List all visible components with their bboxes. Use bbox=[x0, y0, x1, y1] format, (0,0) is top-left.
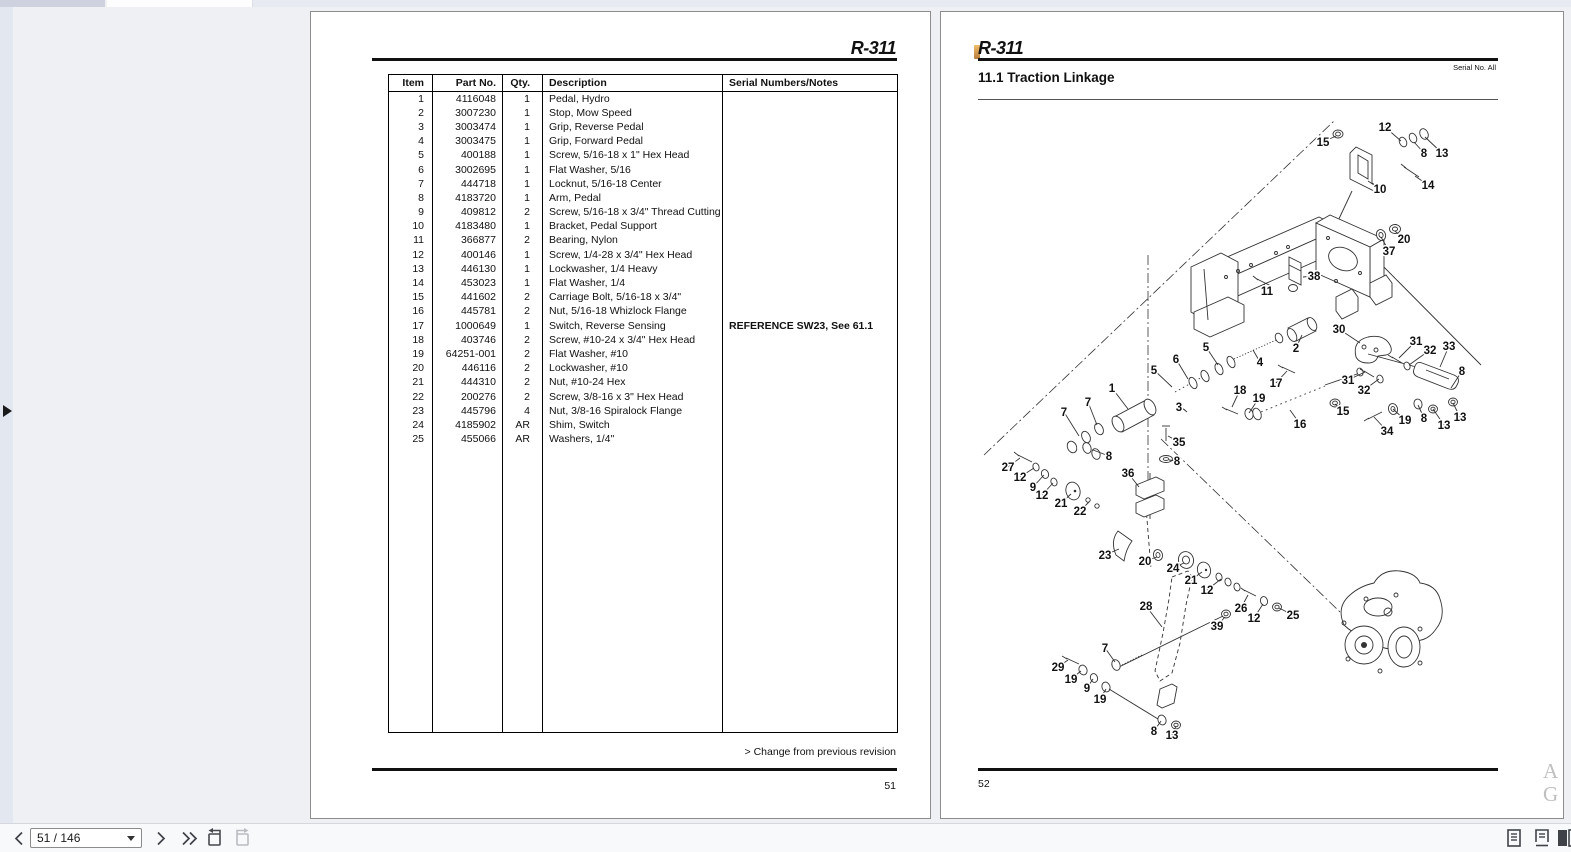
cell-item: 21 bbox=[389, 375, 433, 389]
table-row: 430034751Grip, Forward Pedal bbox=[389, 134, 898, 148]
cell-item: 8 bbox=[389, 191, 433, 205]
cell-notes bbox=[723, 361, 898, 375]
cell-qty: AR bbox=[503, 418, 543, 432]
cell-desc: Nut, 5/16-18 Whizlock Flange bbox=[543, 304, 723, 318]
rotate-counterclockwise-button[interactable] bbox=[203, 827, 225, 849]
cell-item: 6 bbox=[389, 162, 433, 176]
page-indicator: 51 / 146 bbox=[37, 831, 80, 845]
cell-qty: 2 bbox=[503, 375, 543, 389]
part-callout: 20 bbox=[1398, 234, 1411, 246]
cell-desc: Washers, 1/4" bbox=[543, 432, 723, 446]
cell-qty: 2 bbox=[503, 205, 543, 219]
cell-notes bbox=[723, 134, 898, 148]
part-callout: 32 bbox=[1358, 385, 1371, 397]
table-row: 94098122Screw, 5/16-18 x 3/4" Thread Cut… bbox=[389, 205, 898, 219]
part-callout: 8 bbox=[1106, 451, 1113, 463]
cell-empty bbox=[433, 446, 503, 732]
part-callout: 25 bbox=[1287, 610, 1300, 622]
cell-desc: Screw, 5/16-18 x 1" Hex Head bbox=[543, 148, 723, 162]
serial-note: Serial No. All bbox=[1453, 63, 1496, 72]
cell-notes bbox=[723, 304, 898, 318]
cell-notes bbox=[723, 106, 898, 120]
part-callout: 21 bbox=[1185, 575, 1198, 587]
pdf-page-52[interactable]: R-311 Serial No. All 11.1 Traction Linka… bbox=[940, 11, 1564, 819]
part-callout: 28 bbox=[1140, 601, 1153, 613]
cell-part: 3007230 bbox=[433, 106, 503, 120]
table-row: 214443102Nut, #10-24 Hex bbox=[389, 375, 898, 389]
cell-qty: 2 bbox=[503, 290, 543, 304]
cell-notes bbox=[723, 162, 898, 176]
cell-item: 16 bbox=[389, 304, 433, 318]
cell-item: 24 bbox=[389, 418, 433, 432]
cell-item: 19 bbox=[389, 347, 433, 361]
cell-item: 7 bbox=[389, 177, 433, 191]
cell-item: 10 bbox=[389, 219, 433, 233]
cell-qty: 1 bbox=[503, 106, 543, 120]
part-callout: 7 bbox=[1085, 397, 1091, 409]
pdf-viewer: R-311 ItemPart No.Qty.DescriptionSerial … bbox=[0, 7, 1571, 823]
table-row: 1710006491Switch, Reverse SensingREFEREN… bbox=[389, 319, 898, 333]
cell-item: 20 bbox=[389, 361, 433, 375]
window-tab-strip bbox=[0, 0, 1571, 7]
cell-item: 18 bbox=[389, 333, 433, 347]
table-row: 630026951Flat Washer, 5/16 bbox=[389, 162, 898, 176]
cell-part: 64251-001 bbox=[433, 347, 503, 361]
part-callout: 38 bbox=[1308, 271, 1321, 283]
cell-desc: Locknut, 5/16-18 Center bbox=[543, 177, 723, 191]
tab-strip-spacer bbox=[252, 0, 1571, 7]
cell-desc: Bearing, Nylon bbox=[543, 233, 723, 247]
header-rule bbox=[372, 58, 897, 61]
table-row: 54001881Screw, 5/16-18 x 1" Hex Head bbox=[389, 148, 898, 162]
double-chevron-right-icon bbox=[181, 831, 198, 846]
cell-empty bbox=[389, 446, 433, 732]
cell-part: 403746 bbox=[433, 333, 503, 347]
cell-part: 446130 bbox=[433, 262, 503, 276]
cell-item: 22 bbox=[389, 389, 433, 403]
header-rule bbox=[978, 58, 1498, 61]
part-callout: 15 bbox=[1337, 406, 1350, 418]
cell-qty: 2 bbox=[503, 361, 543, 375]
cell-part: 4185902 bbox=[433, 418, 503, 432]
part-callout: 4 bbox=[1257, 357, 1264, 369]
cell-notes bbox=[723, 233, 898, 247]
rotate-clockwise-button[interactable] bbox=[231, 827, 253, 849]
cell-desc: Screw, 5/16-18 x 3/4" Thread Cutting bbox=[543, 205, 723, 219]
column-header: Description bbox=[543, 75, 723, 92]
part-callout: 8 bbox=[1151, 726, 1158, 738]
two-page-view-icon bbox=[1557, 827, 1571, 849]
part-callout: 7 bbox=[1102, 643, 1108, 655]
cell-item: 13 bbox=[389, 262, 433, 276]
cell-desc: Stop, Mow Speed bbox=[543, 106, 723, 120]
page-title: R-311 bbox=[978, 38, 1023, 59]
part-callout: 19 bbox=[1399, 415, 1412, 427]
cell-notes bbox=[723, 290, 898, 304]
part-callout: 22 bbox=[1074, 506, 1087, 518]
page-title: R-311 bbox=[851, 38, 896, 59]
cell-desc: Flat Washer, 5/16 bbox=[543, 162, 723, 176]
part-callout: 8 bbox=[1459, 366, 1466, 378]
part-callout: 19 bbox=[1253, 393, 1266, 405]
single-page-view-button[interactable] bbox=[1503, 827, 1525, 849]
footer-rule bbox=[978, 768, 1498, 771]
cell-item: 2 bbox=[389, 106, 433, 120]
part-callout: 10 bbox=[1374, 184, 1387, 196]
part-callout: 33 bbox=[1443, 341, 1456, 353]
cell-notes bbox=[723, 276, 898, 290]
rotate-counterclockwise-icon bbox=[204, 828, 225, 848]
part-callout: 30 bbox=[1333, 324, 1346, 336]
part-callout: 16 bbox=[1294, 419, 1307, 431]
part-callout: 12 bbox=[1379, 122, 1392, 134]
part-callout: 12 bbox=[1014, 472, 1027, 484]
table-row: 154416022Carriage Bolt, 5/16-18 x 3/4" bbox=[389, 290, 898, 304]
cell-part: 200276 bbox=[433, 389, 503, 403]
column-header: Qty. bbox=[503, 75, 543, 92]
table-header-row: ItemPart No.Qty.DescriptionSerial Number… bbox=[389, 75, 898, 92]
last-page-button[interactable] bbox=[176, 827, 202, 849]
hydro-pump bbox=[1341, 571, 1442, 673]
cell-notes bbox=[723, 92, 898, 106]
cell-desc: Flat Washer, 1/4 bbox=[543, 276, 723, 290]
part-callout: 3 bbox=[1176, 402, 1182, 414]
cell-notes bbox=[723, 148, 898, 162]
part-callout: 26 bbox=[1235, 603, 1248, 615]
cell-qty: 2 bbox=[503, 389, 543, 403]
cell-qty: 2 bbox=[503, 304, 543, 318]
continuous-scroll-view-icon bbox=[1531, 827, 1553, 849]
part-callout: 20 bbox=[1139, 556, 1152, 568]
table-row: 234457964Nut, 3/8-16 Spiralock Flange bbox=[389, 404, 898, 418]
table-row: 74447181Locknut, 5/16-18 Center bbox=[389, 177, 898, 191]
page-number: 51 bbox=[884, 780, 896, 792]
section-title: 11.1 Traction Linkage bbox=[978, 70, 1115, 85]
cell-part: 4183720 bbox=[433, 191, 503, 205]
cell-desc: Lockwasher, #10 bbox=[543, 361, 723, 375]
single-page-view-icon bbox=[1503, 827, 1525, 849]
part-callout: 5 bbox=[1151, 365, 1158, 377]
cell-part: 455066 bbox=[433, 432, 503, 446]
cell-notes: REFERENCE SW23, See 61.1 bbox=[723, 319, 898, 333]
cell-desc: Screw, 1/4-28 x 3/4" Hex Head bbox=[543, 248, 723, 262]
table-row: 184037462Screw, #10-24 x 3/4" Hex Head bbox=[389, 333, 898, 347]
cell-notes bbox=[723, 432, 898, 446]
next-page-button[interactable] bbox=[150, 827, 172, 849]
cell-notes bbox=[723, 389, 898, 403]
pdf-page-51[interactable]: R-311 ItemPart No.Qty.DescriptionSerial … bbox=[310, 11, 931, 819]
table-filler-row bbox=[389, 446, 898, 732]
part-callout: 12 bbox=[1036, 490, 1049, 502]
cell-item: 11 bbox=[389, 233, 433, 247]
watermark-letters: AG bbox=[1543, 760, 1564, 806]
cell-part: 400146 bbox=[433, 248, 503, 262]
cell-part: 445781 bbox=[433, 304, 503, 318]
cell-qty: 2 bbox=[503, 347, 543, 361]
cell-qty: 1 bbox=[503, 92, 543, 106]
part-callout: 27 bbox=[1002, 462, 1015, 474]
cell-notes bbox=[723, 404, 898, 418]
cell-notes bbox=[723, 418, 898, 432]
cell-qty: 2 bbox=[503, 233, 543, 247]
cell-part: 444718 bbox=[433, 177, 503, 191]
cell-qty: 2 bbox=[503, 333, 543, 347]
cell-part: 409812 bbox=[433, 205, 503, 219]
column-header: Serial Numbers/Notes bbox=[723, 75, 898, 92]
cell-part: 3003474 bbox=[433, 120, 503, 134]
part-callout: 12 bbox=[1201, 585, 1214, 597]
cell-desc: Nut, 3/8-16 Spiralock Flange bbox=[543, 404, 723, 418]
part-callout: 34 bbox=[1381, 426, 1394, 438]
cell-empty bbox=[503, 446, 543, 732]
part-callout: 19 bbox=[1065, 674, 1078, 686]
cell-item: 9 bbox=[389, 205, 433, 219]
cell-notes bbox=[723, 177, 898, 191]
cell-qty: 1 bbox=[503, 248, 543, 262]
part-callout: 35 bbox=[1173, 437, 1186, 449]
parts-table: ItemPart No.Qty.DescriptionSerial Number… bbox=[388, 74, 897, 733]
table-row: 230072301Stop, Mow Speed bbox=[389, 106, 898, 120]
cell-item: 3 bbox=[389, 120, 433, 134]
part-callout: 13 bbox=[1438, 420, 1451, 432]
part-callout: 18 bbox=[1234, 385, 1247, 397]
cell-item: 1 bbox=[389, 92, 433, 106]
part-callout: 17 bbox=[1270, 378, 1283, 390]
cell-notes bbox=[723, 333, 898, 347]
cell-notes bbox=[723, 205, 898, 219]
pedal-rod-assembly bbox=[1062, 571, 1223, 729]
cell-desc: Screw, #10-24 x 3/4" Hex Head bbox=[543, 333, 723, 347]
part-callout: 8 bbox=[1421, 148, 1428, 160]
table-row: 141160481Pedal, Hydro bbox=[389, 92, 898, 106]
part-callout: 21 bbox=[1055, 498, 1068, 510]
part-callout: 11 bbox=[1261, 286, 1274, 298]
cell-desc: Screw, 3/8-16 x 3" Hex Head bbox=[543, 389, 723, 403]
cell-notes bbox=[723, 375, 898, 389]
cell-notes bbox=[723, 347, 898, 361]
cell-part: 4183480 bbox=[433, 219, 503, 233]
cell-desc: Grip, Reverse Pedal bbox=[543, 120, 723, 134]
cell-notes bbox=[723, 219, 898, 233]
cell-item: 12 bbox=[389, 248, 433, 262]
cell-desc: Bracket, Pedal Support bbox=[543, 219, 723, 233]
cell-empty bbox=[723, 446, 898, 732]
part-callout: 8 bbox=[1421, 413, 1428, 425]
cell-qty: 1 bbox=[503, 134, 543, 148]
part-callout: 19 bbox=[1094, 694, 1107, 706]
part-callout: 8 bbox=[1174, 456, 1181, 468]
part-callout: 14 bbox=[1422, 180, 1435, 192]
table-row: 124001461Screw, 1/4-28 x 3/4" Hex Head bbox=[389, 248, 898, 262]
cell-notes bbox=[723, 191, 898, 205]
cell-empty bbox=[543, 446, 723, 732]
part-callout: 7 bbox=[1061, 407, 1067, 419]
cell-desc: Nut, #10-24 Hex bbox=[543, 375, 723, 389]
page-number: 52 bbox=[978, 778, 990, 790]
part-callout: 1 bbox=[1109, 383, 1116, 395]
part-callout: 13 bbox=[1436, 148, 1449, 160]
cell-desc: Lockwasher, 1/4 Heavy bbox=[543, 262, 723, 276]
two-page-view-button[interactable] bbox=[1557, 827, 1571, 849]
cell-qty: 1 bbox=[503, 191, 543, 205]
table-row: 222002762Screw, 3/8-16 x 3" Hex Head bbox=[389, 389, 898, 403]
table-row: 244185902ARShim, Switch bbox=[389, 418, 898, 432]
cell-item: 23 bbox=[389, 404, 433, 418]
cell-desc: Carriage Bolt, 5/16-18 x 3/4" bbox=[543, 290, 723, 304]
cell-desc: Shim, Switch bbox=[543, 418, 723, 432]
cell-qty: 1 bbox=[503, 148, 543, 162]
part-callout: 13 bbox=[1454, 412, 1467, 424]
cell-part: 441602 bbox=[433, 290, 503, 304]
cell-item: 17 bbox=[389, 319, 433, 333]
previous-page-button[interactable] bbox=[8, 827, 30, 849]
part-callout: 15 bbox=[1317, 137, 1330, 149]
part-callout: 23 bbox=[1099, 550, 1112, 562]
cell-qty: 1 bbox=[503, 319, 543, 333]
cell-desc: Flat Washer, #10 bbox=[543, 347, 723, 361]
part-callout: 24 bbox=[1167, 563, 1180, 575]
cell-qty: 1 bbox=[503, 219, 543, 233]
part-callout: 9 bbox=[1084, 683, 1090, 695]
cell-notes bbox=[723, 248, 898, 262]
part-callout: 5 bbox=[1203, 342, 1210, 354]
cell-qty: 1 bbox=[503, 262, 543, 276]
part-callout: 2 bbox=[1293, 343, 1299, 355]
cell-part: 444310 bbox=[433, 375, 503, 389]
table-row: 330034741Grip, Reverse Pedal bbox=[389, 120, 898, 134]
table-row: 134461301Lockwasher, 1/4 Heavy bbox=[389, 262, 898, 276]
table-row: 1964251-0012Flat Washer, #10 bbox=[389, 347, 898, 361]
cell-part: 446116 bbox=[433, 361, 503, 375]
cell-item: 14 bbox=[389, 276, 433, 290]
hardware-top-right bbox=[1333, 127, 1430, 177]
inactive-tab-edge[interactable] bbox=[0, 0, 107, 7]
cell-item: 4 bbox=[389, 134, 433, 148]
part-callout: 13 bbox=[1166, 730, 1179, 742]
rotate-clockwise-icon bbox=[232, 828, 253, 848]
cell-qty: 1 bbox=[503, 276, 543, 290]
table-row: 1041834801Bracket, Pedal Support bbox=[389, 219, 898, 233]
cell-desc: Pedal, Hydro bbox=[543, 92, 723, 106]
cell-qty: 4 bbox=[503, 404, 543, 418]
table-row: 204461162Lockwasher, #10 bbox=[389, 361, 898, 375]
part-callout: 32 bbox=[1424, 345, 1437, 357]
cell-part: 4116048 bbox=[433, 92, 503, 106]
part-callout: 39 bbox=[1211, 621, 1224, 633]
footer-rule bbox=[372, 768, 897, 771]
cell-item: 5 bbox=[389, 148, 433, 162]
cell-notes bbox=[723, 262, 898, 276]
cell-part: 3003475 bbox=[433, 134, 503, 148]
chevron-right-icon bbox=[156, 831, 166, 846]
cell-part: 3002695 bbox=[433, 162, 503, 176]
clamp-assembly bbox=[1136, 426, 1173, 519]
part-callout: 31 bbox=[1342, 375, 1355, 387]
part-callout: 36 bbox=[1122, 468, 1135, 480]
part-callout: 29 bbox=[1052, 662, 1065, 674]
cell-part: 445796 bbox=[433, 404, 503, 418]
table-row: 164457812Nut, 5/16-18 Whizlock Flange bbox=[389, 304, 898, 318]
column-header: Part No. bbox=[433, 75, 503, 92]
continuous-scroll-view-button[interactable] bbox=[1531, 827, 1553, 849]
table-row: 841837201Arm, Pedal bbox=[389, 191, 898, 205]
cell-qty: 1 bbox=[503, 162, 543, 176]
cell-qty: 1 bbox=[503, 120, 543, 134]
cell-item: 25 bbox=[389, 432, 433, 446]
cell-desc: Grip, Forward Pedal bbox=[543, 134, 723, 148]
cell-desc: Switch, Reverse Sensing bbox=[543, 319, 723, 333]
cell-desc: Arm, Pedal bbox=[543, 191, 723, 205]
table-row: 113668772Bearing, Nylon bbox=[389, 233, 898, 247]
cell-qty: AR bbox=[503, 432, 543, 446]
part-callout: 31 bbox=[1410, 336, 1423, 348]
revision-note: > Change from previous revision bbox=[745, 746, 896, 758]
table-row: 144530231Flat Washer, 1/4 bbox=[389, 276, 898, 290]
chevron-left-icon bbox=[14, 831, 24, 846]
cell-part: 1000649 bbox=[433, 319, 503, 333]
sidebar-toggle-icon[interactable] bbox=[3, 405, 12, 417]
part-callout: 6 bbox=[1173, 354, 1179, 366]
part-callout: 37 bbox=[1383, 246, 1396, 258]
cell-part: 453023 bbox=[433, 276, 503, 290]
active-tab-edge[interactable] bbox=[107, 0, 252, 7]
page-select[interactable]: 51 / 146 bbox=[30, 828, 142, 848]
cell-notes bbox=[723, 120, 898, 134]
section-rule bbox=[978, 99, 1498, 100]
cell-qty: 1 bbox=[503, 177, 543, 191]
cell-part: 366877 bbox=[433, 233, 503, 247]
exploded-parts-diagram: 1512813101420373811303132338313224565171… bbox=[976, 107, 1501, 762]
table-row: 25455066ARWashers, 1/4" bbox=[389, 432, 898, 446]
part-callout: 12 bbox=[1248, 613, 1261, 625]
dropdown-caret-icon bbox=[127, 836, 135, 841]
column-header: Item bbox=[389, 75, 433, 92]
cell-item: 15 bbox=[389, 290, 433, 304]
viewer-toolbar: 51 / 146 bbox=[0, 823, 1571, 852]
cell-part: 400188 bbox=[433, 148, 503, 162]
